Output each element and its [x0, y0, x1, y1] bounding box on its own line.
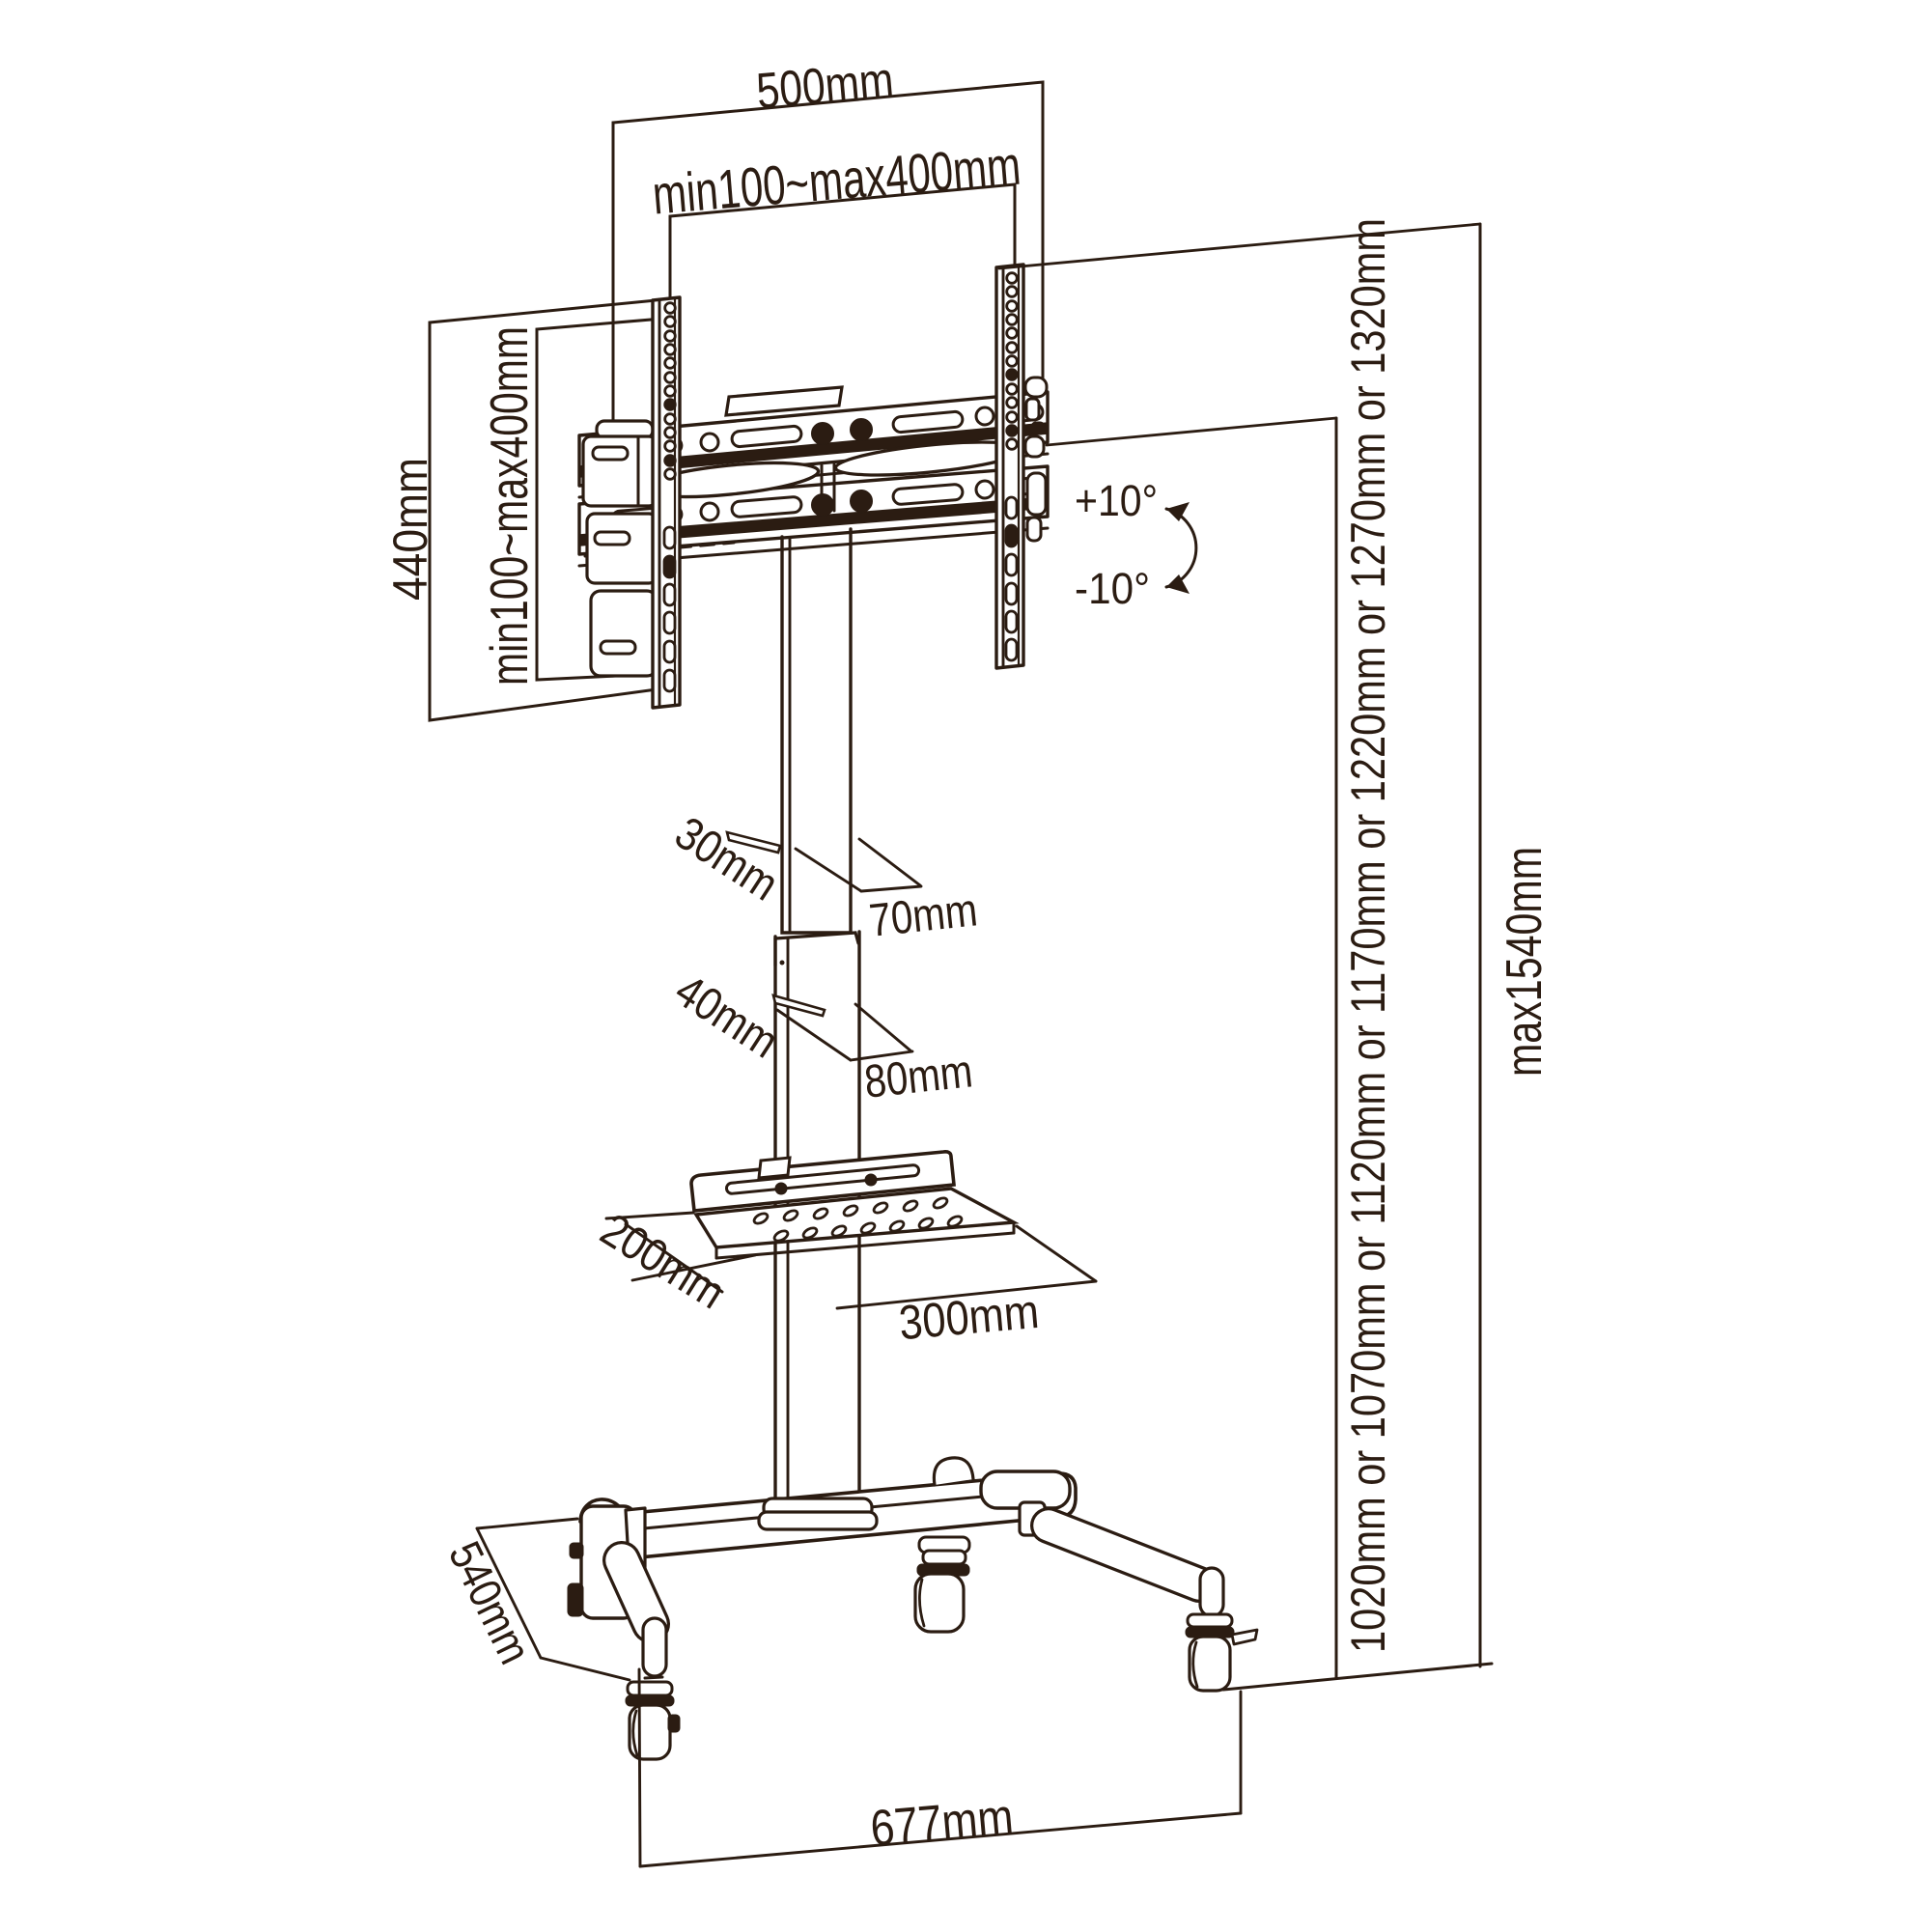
svg-text:440mm: 440mm [383, 458, 437, 601]
svg-text:-10°: -10° [1075, 564, 1150, 613]
svg-text:1020mm or 1070mm or 1120mm or: 1020mm or 1070mm or 1120mm or 1170mm or … [1341, 218, 1395, 1653]
svg-text:max1540mm: max1540mm [1497, 847, 1553, 1077]
svg-text:500mm: 500mm [754, 52, 896, 120]
svg-text:min100~max400mm: min100~max400mm [479, 326, 539, 686]
svg-text:+10°: +10° [1075, 476, 1158, 525]
